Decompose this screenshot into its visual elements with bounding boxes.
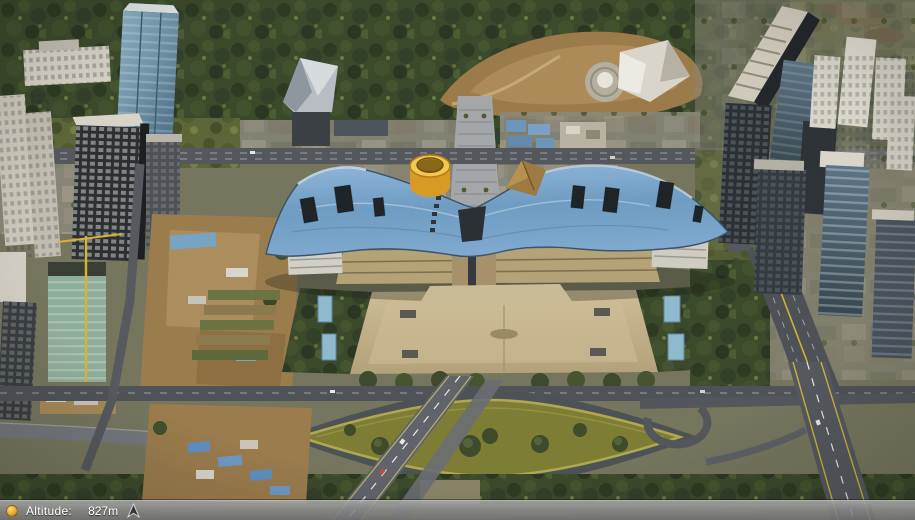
status-bar: Altitude: 827m	[0, 500, 915, 520]
map-window: Altitude: 827m	[0, 0, 915, 520]
altitude-value: 827m	[88, 504, 118, 518]
compass-arrow-icon	[127, 503, 140, 518]
map-viewport[interactable]	[0, 0, 915, 520]
altitude-label: Altitude:	[26, 504, 72, 518]
streaming-indicator-icon	[6, 505, 18, 517]
vignette-overlay	[0, 0, 915, 520]
